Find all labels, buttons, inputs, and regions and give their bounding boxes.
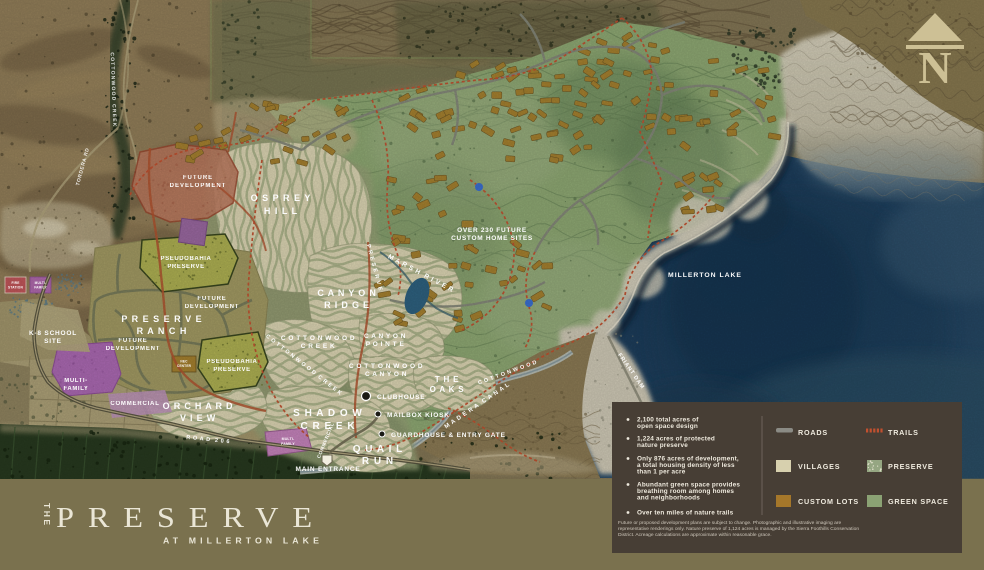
svg-text:MULTI-: MULTI- <box>35 281 47 285</box>
svg-text:S H A D O W: S H A D O W <box>293 408 363 419</box>
svg-text:NEC: NEC <box>180 360 188 364</box>
svg-text:District. Acreage calculations: District. Acreage calculations are appro… <box>618 532 772 538</box>
svg-text:CENTER: CENTER <box>177 364 192 368</box>
svg-text:Over ten miles of nature trail: Over ten miles of nature trails <box>637 510 734 517</box>
svg-text:R U N: R U N <box>362 456 394 467</box>
svg-text:C O T T O N W O O D: C O T T O N W O O D <box>281 335 355 342</box>
svg-text:MAIN ENTRANCE: MAIN ENTRANCE <box>296 466 361 473</box>
svg-text:C A N Y O N: C A N Y O N <box>365 371 407 378</box>
svg-text:and neighborhoods: and neighborhoods <box>637 495 700 502</box>
svg-text:PSEUDOBAHIA: PSEUDOBAHIA <box>161 256 212 262</box>
svg-text:representative renderings only: representative renderings only. Nature p… <box>618 526 859 532</box>
svg-text:COMMERCIAL: COMMERCIAL <box>110 401 159 407</box>
svg-text:GUARDHOUSE & ENTRY GATE: GUARDHOUSE & ENTRY GATE <box>391 432 506 439</box>
svg-text:FUTURE: FUTURE <box>183 175 213 181</box>
svg-text:THE: THE <box>42 503 52 528</box>
svg-text:CUSTOM HOME SITES: CUSTOM HOME SITES <box>451 235 533 242</box>
svg-text:PRESERVE: PRESERVE <box>213 367 250 373</box>
svg-text:FIRE: FIRE <box>11 281 19 285</box>
svg-text:DEVELOPMENT: DEVELOPMENT <box>106 346 160 352</box>
svg-text:FAMILY: FAMILY <box>63 386 88 392</box>
svg-text:P R E S E R V E: P R E S E R V E <box>121 314 202 324</box>
svg-text:GREEN SPACE: GREEN SPACE <box>888 497 949 506</box>
svg-text:Q U A I L: Q U A I L <box>353 444 403 455</box>
svg-text:FUTURE: FUTURE <box>118 338 147 344</box>
svg-text:SITE: SITE <box>44 338 62 345</box>
svg-text:C A N Y O N: C A N Y O N <box>317 288 376 298</box>
svg-text:P O I N T E: P O I N T E <box>366 341 405 348</box>
svg-text:C O T T O N W O O D: C O T T O N W O O D <box>349 363 423 370</box>
svg-text:STATION: STATION <box>8 286 23 290</box>
svg-text:R I D G E: R I D G E <box>324 300 370 310</box>
svg-text:OVER 230 FUTURE: OVER 230 FUTURE <box>457 227 527 234</box>
svg-text:MULTI-: MULTI- <box>64 378 87 384</box>
svg-text:FAMILY: FAMILY <box>281 442 295 446</box>
svg-text:CUSTOM LOTS: CUSTOM LOTS <box>798 497 859 506</box>
svg-text:PRESERVE: PRESERVE <box>167 264 204 270</box>
svg-text:AT MILLERTON LAKE: AT MILLERTON LAKE <box>163 536 323 546</box>
svg-text:MILLERTON LAKE: MILLERTON LAKE <box>668 272 742 279</box>
svg-text:Future or proposed development: Future or proposed development plans are… <box>618 520 841 526</box>
svg-text:O S P R E Y: O S P R E Y <box>251 193 312 203</box>
svg-text:TRAILS: TRAILS <box>888 428 919 437</box>
svg-text:ROADS: ROADS <box>798 428 828 437</box>
svg-text:PSEUDOBAHIA: PSEUDOBAHIA <box>207 359 258 365</box>
svg-text:DEVELOPMENT: DEVELOPMENT <box>185 304 239 310</box>
svg-text:CLUBHOUSE: CLUBHOUSE <box>377 394 425 401</box>
svg-text:N: N <box>918 42 951 93</box>
svg-text:open space design: open space design <box>637 423 698 430</box>
svg-text:R A N C H: R A N C H <box>137 326 188 336</box>
svg-text:O R C H A R D: O R C H A R D <box>163 401 234 411</box>
svg-text:C A N Y O N: C A N Y O N <box>364 333 406 340</box>
svg-text:O A K S: O A K S <box>430 385 465 394</box>
svg-text:C R E E K: C R E E K <box>301 343 335 350</box>
svg-text:FUTURE: FUTURE <box>197 296 226 302</box>
svg-text:PRESERVE: PRESERVE <box>888 462 933 471</box>
svg-text:V I E W: V I E W <box>180 413 216 423</box>
svg-text:than 1 per acre: than 1 per acre <box>637 469 686 476</box>
svg-text:FAMILY: FAMILY <box>34 286 47 290</box>
svg-text:nature preserve: nature preserve <box>637 442 688 449</box>
svg-text:VILLAGES: VILLAGES <box>798 462 840 471</box>
svg-text:K-8 SCHOOL: K-8 SCHOOL <box>29 330 77 337</box>
svg-text:H I L L: H I L L <box>264 206 298 216</box>
svg-text:PRESERVE: PRESERVE <box>56 503 326 534</box>
svg-text:DEVELOPMENT: DEVELOPMENT <box>170 183 227 189</box>
svg-text:T H E: T H E <box>435 375 459 384</box>
svg-text:MULTI-: MULTI- <box>282 437 295 441</box>
svg-text:MAILBOX KIOSK: MAILBOX KIOSK <box>387 412 450 419</box>
